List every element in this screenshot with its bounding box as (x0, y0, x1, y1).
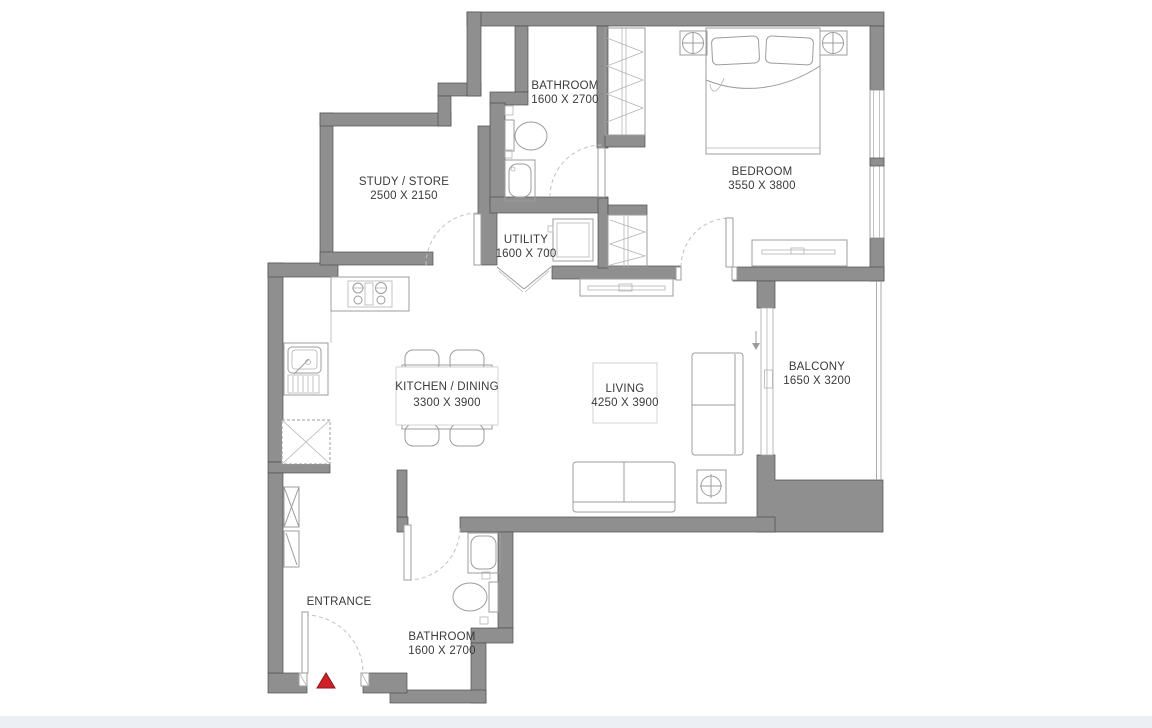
utility-label: UTILITY (504, 234, 548, 246)
wardrobe-top (605, 28, 645, 135)
nightstand-right (820, 31, 847, 55)
ensuite-toilet (505, 106, 547, 158)
kitchen-sink (284, 343, 328, 395)
utility-dims: 1600 X 700 (496, 248, 557, 260)
entrance-marker-icon (317, 673, 335, 688)
nightstand-left (680, 31, 707, 55)
kitchen-counter (331, 311, 398, 343)
bedroom-dims: 3550 X 3800 (728, 180, 795, 192)
bathroom-top-label: BATHROOM (531, 80, 598, 92)
living-label: LIVING (606, 383, 645, 395)
tv-console-living (580, 279, 673, 296)
sofa-right (692, 353, 743, 455)
floor-plan-page: BATHROOM 1600 X 2700 BEDROOM 3550 X 3800… (0, 0, 1152, 728)
ensuite-bathroom-door (550, 145, 605, 197)
kitchen-dining-label: KITCHEN / DINING (395, 381, 499, 393)
footer-strip (0, 716, 1152, 728)
entrance-label: ENTRANCE (307, 596, 372, 608)
study-dims: 2500 X 2150 (370, 190, 437, 202)
floor-plan-svg: BATHROOM 1600 X 2700 BEDROOM 3550 X 3800… (0, 0, 1152, 728)
utility-bifold-doors (497, 267, 551, 292)
main-bathroom-door (404, 525, 460, 580)
kitchen-label-box (396, 367, 498, 425)
ensuite-sink (505, 160, 535, 201)
study-door (426, 213, 481, 265)
study-label: STUDY / STORE (359, 176, 449, 188)
bedroom-window (870, 90, 884, 238)
dresser (752, 240, 847, 266)
balcony-label: BALCONY (789, 361, 845, 373)
bedroom-label: BEDROOM (732, 166, 793, 178)
stove (331, 277, 409, 311)
service-shafts (284, 487, 299, 567)
dishwasher-space (282, 420, 330, 464)
balcony-door-arrow-icon (752, 331, 760, 350)
bedroom-door (676, 218, 737, 280)
main-bathroom-sink (468, 533, 500, 573)
bathroom-bottom-label: BATHROOM (408, 631, 475, 643)
balcony-sliding-door (761, 308, 773, 455)
side-table (697, 470, 726, 503)
balcony-dims: 1650 X 3200 (783, 375, 850, 387)
bed (706, 28, 820, 154)
wardrobe-lower (608, 215, 647, 267)
main-bathroom-toilet (453, 572, 498, 624)
balcony-railing (877, 281, 882, 480)
entrance-door (299, 612, 369, 686)
bathroom-bottom-dims: 1600 X 2700 (408, 645, 475, 657)
living-dims: 4250 X 3900 (591, 397, 658, 409)
kitchen-dining-dims: 3300 X 3900 (413, 397, 480, 409)
bathroom-top-dims: 1600 X 2700 (531, 94, 598, 106)
sofa-bottom (573, 462, 675, 512)
